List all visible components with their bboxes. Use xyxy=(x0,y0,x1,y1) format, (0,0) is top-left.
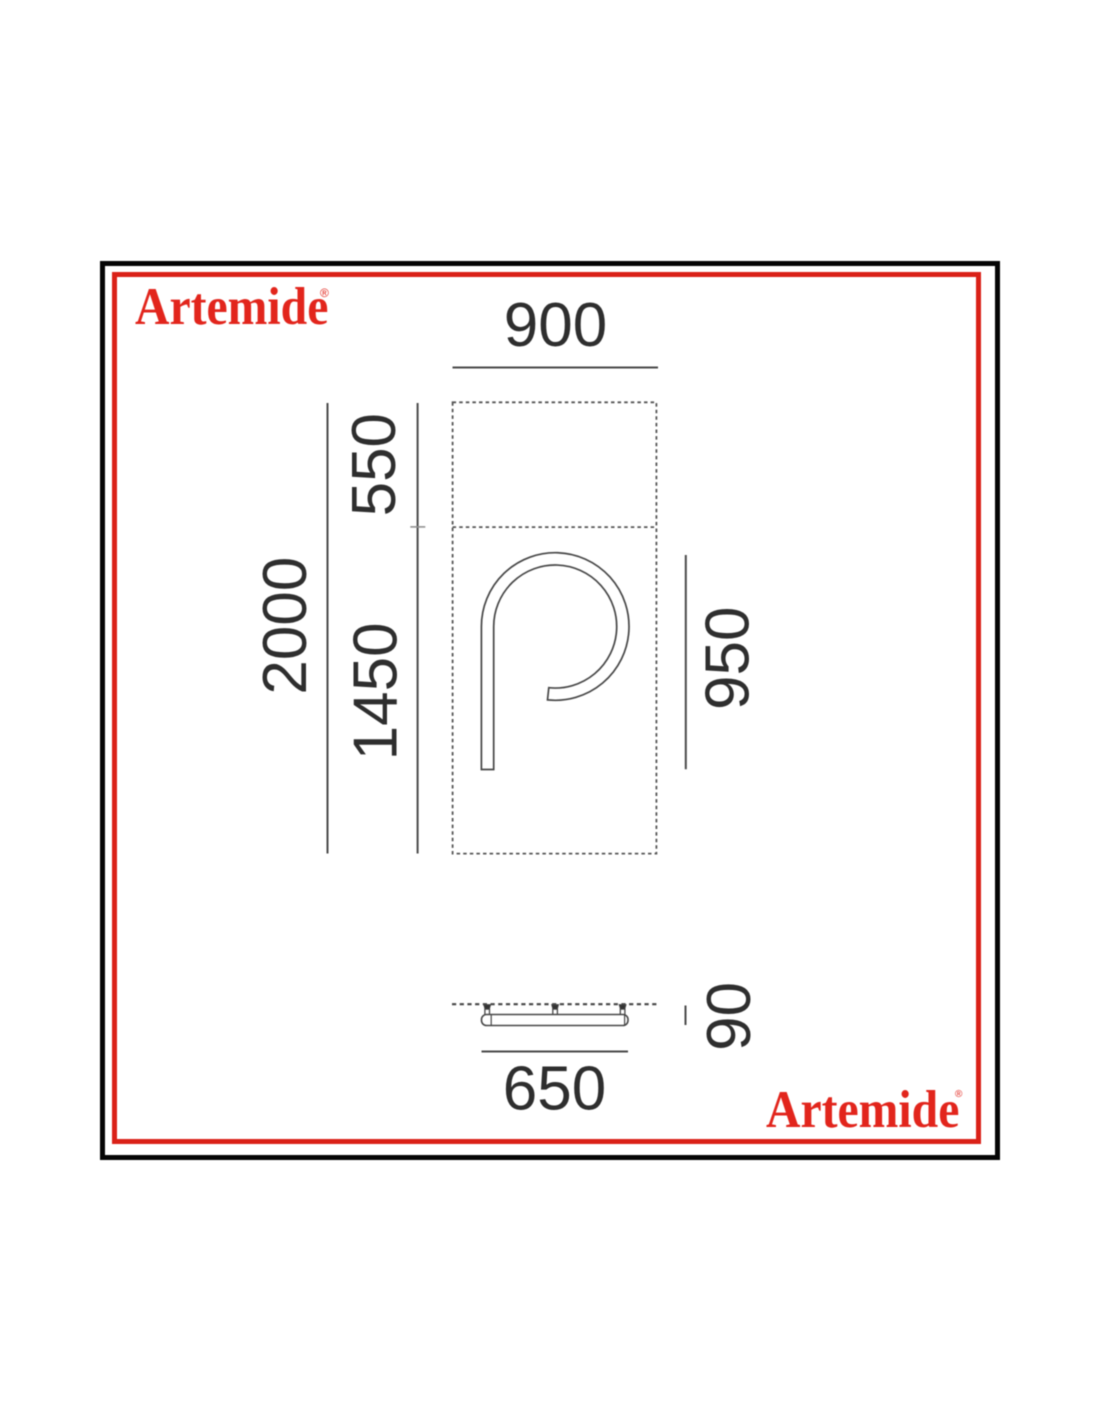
svg-text:900: 900 xyxy=(504,291,607,360)
svg-text:1450: 1450 xyxy=(342,622,411,760)
svg-text:2000: 2000 xyxy=(251,557,320,695)
svg-text:550: 550 xyxy=(340,413,409,516)
svg-text:650: 650 xyxy=(503,1055,606,1124)
svg-text:90: 90 xyxy=(695,982,764,1051)
svg-text:950: 950 xyxy=(694,607,763,710)
